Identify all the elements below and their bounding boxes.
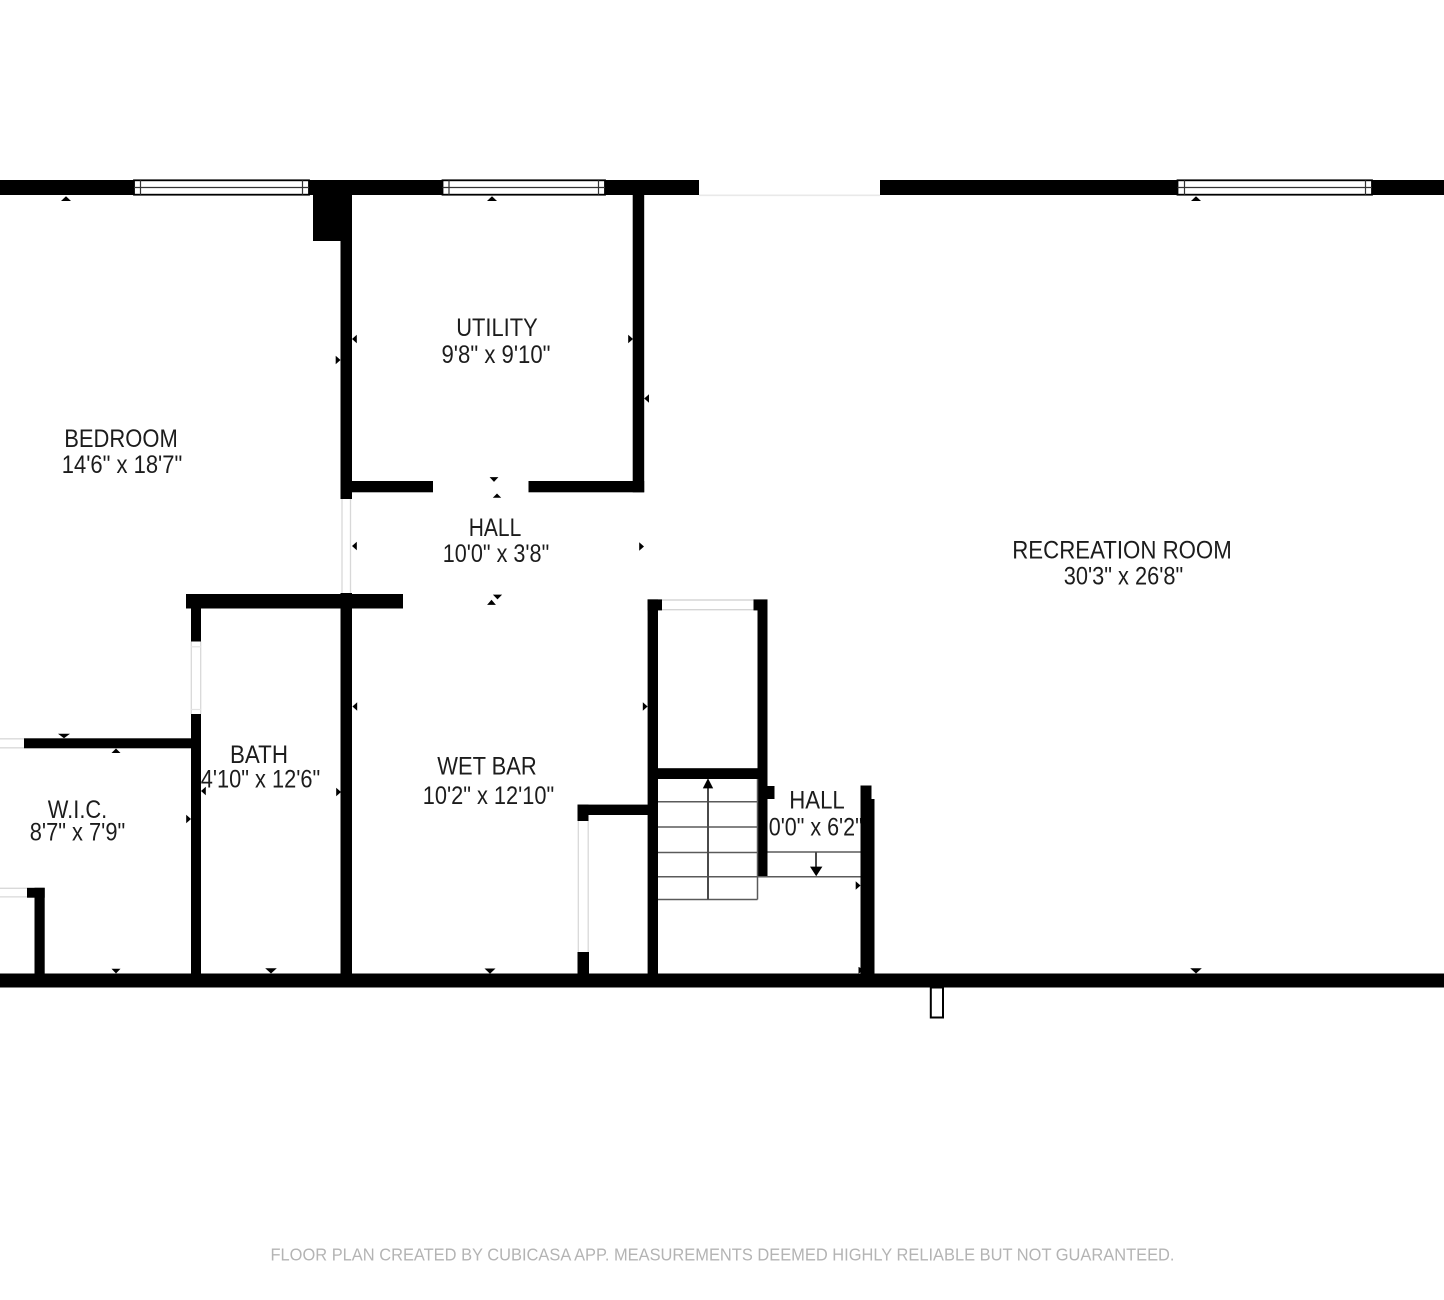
svg-text:HALL: HALL: [789, 787, 845, 815]
svg-text:10'2" x 12'10": 10'2" x 12'10": [423, 782, 555, 810]
svg-text:0'0" x 6'2": 0'0" x 6'2": [769, 814, 863, 842]
svg-text:UTILITY: UTILITY: [456, 314, 538, 342]
svg-text:9'8" x 9'10": 9'8" x 9'10": [442, 341, 551, 369]
svg-text:WET BAR: WET BAR: [437, 753, 537, 781]
svg-text:FLOOR PLAN CREATED BY CUBICASA: FLOOR PLAN CREATED BY CUBICASA APP. MEAS…: [271, 1245, 1175, 1265]
svg-text:8'7" x 7'9": 8'7" x 7'9": [30, 819, 126, 847]
svg-text:BEDROOM: BEDROOM: [64, 425, 178, 453]
svg-text:RECREATION ROOM: RECREATION ROOM: [1012, 537, 1232, 565]
svg-text:4'10" x 12'6": 4'10" x 12'6": [201, 766, 321, 794]
svg-text:10'0" x 3'8": 10'0" x 3'8": [443, 540, 550, 568]
svg-text:14'6" x 18'7": 14'6" x 18'7": [62, 451, 183, 479]
svg-text:HALL: HALL: [469, 514, 522, 542]
svg-text:30'3" x 26'8": 30'3" x 26'8": [1064, 563, 1184, 591]
